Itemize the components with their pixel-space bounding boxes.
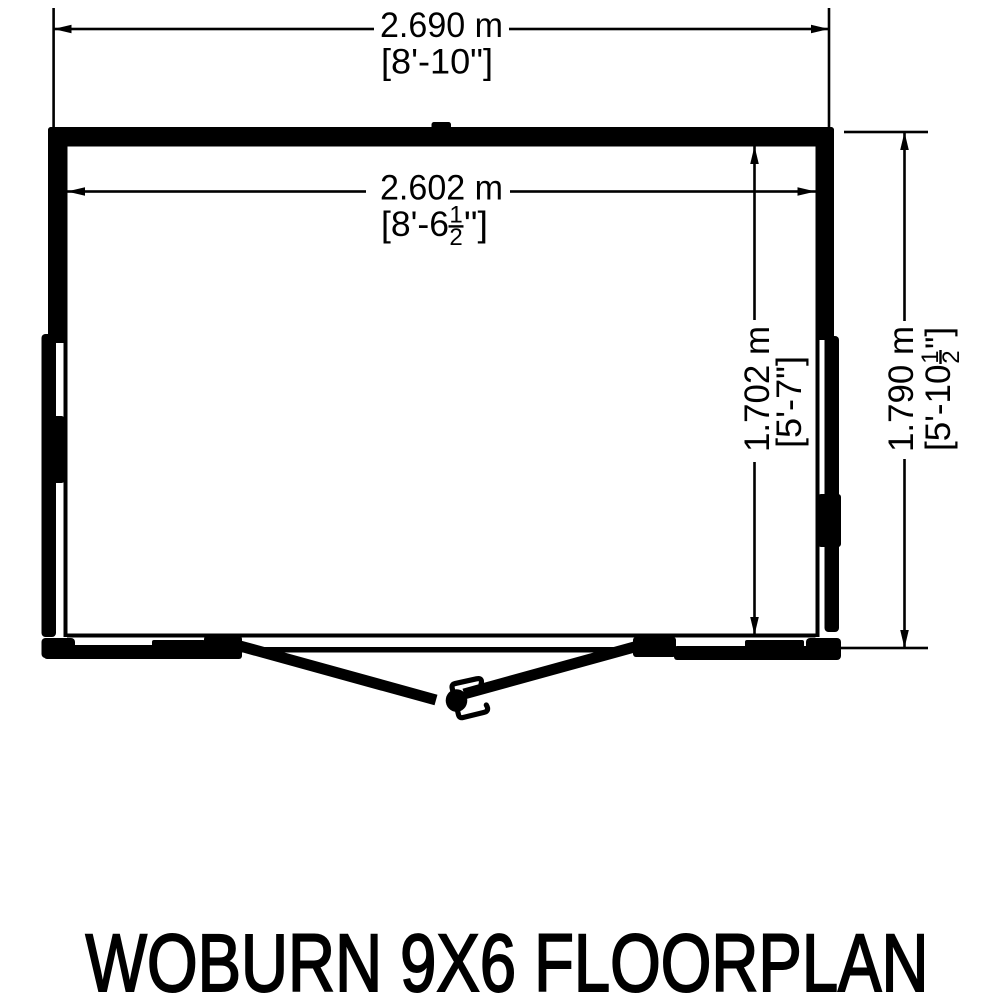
svg-text:2.602 m: 2.602 m: [380, 169, 503, 208]
svg-text:2: 2: [449, 224, 462, 251]
svg-text:[8'-6: [8'-6: [381, 205, 449, 244]
svg-text:[5'-7"]: [5'-7"]: [770, 356, 809, 448]
svg-text:2.690 m: 2.690 m: [380, 6, 503, 45]
svg-text:"]: "]: [919, 327, 958, 349]
svg-text:"]: "]: [464, 205, 488, 244]
svg-text:[5'-10: [5'-10: [919, 365, 958, 451]
svg-text:2: 2: [938, 350, 965, 363]
svg-text:WOBURN 9X6 FLOORPLAN: WOBURN 9X6 FLOORPLAN: [86, 918, 929, 1000]
svg-text:1.790 m: 1.790 m: [882, 326, 921, 452]
svg-text:[8'-10"]: [8'-10"]: [381, 43, 493, 82]
